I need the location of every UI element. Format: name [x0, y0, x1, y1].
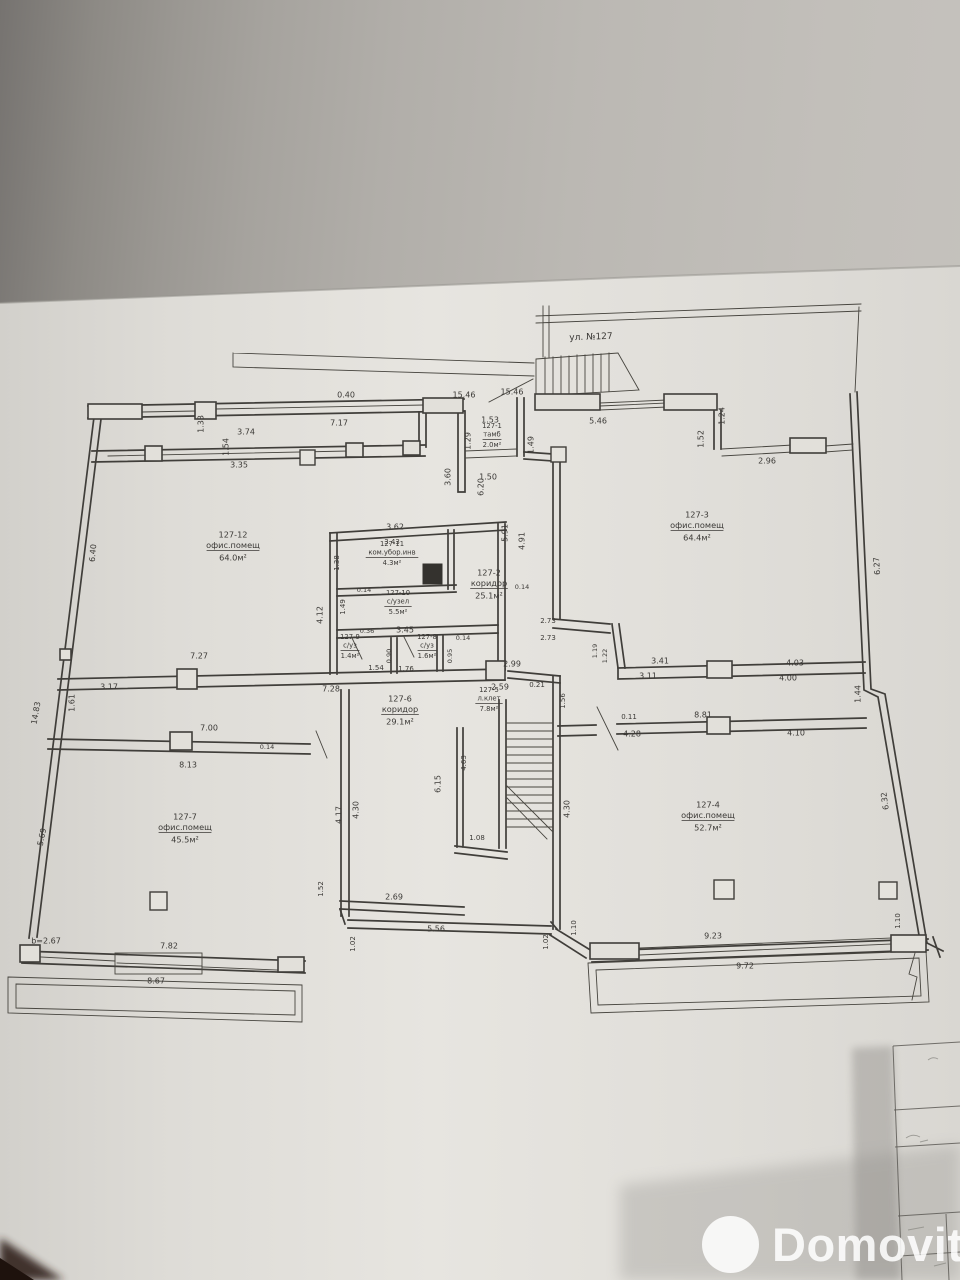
dimension-label: 7.27	[190, 652, 208, 661]
dimension-label: 1.76	[398, 665, 414, 673]
dimension-label: 3.62	[386, 523, 404, 532]
dimension-label: 3.41	[651, 657, 669, 666]
dimension-label: 1.54	[368, 664, 384, 672]
dimension-label: 0.14	[456, 634, 470, 642]
room-number-label: 127-8	[417, 633, 437, 641]
dimension-label: 1.10	[894, 913, 902, 929]
dimension-label: 3.45	[396, 626, 414, 635]
dimension-label: 1.02	[542, 934, 550, 950]
dimension-label: 1.38	[333, 555, 341, 571]
dimension-label: 1.49	[339, 599, 347, 615]
room-name-label: офис.помещ	[158, 822, 212, 832]
dimension-label: 3.17	[100, 683, 118, 692]
room-area-label: 4.3м²	[383, 559, 402, 567]
dimension-label: 8.67	[147, 977, 165, 986]
room-number-label: 127-1	[482, 422, 502, 430]
room-name-label: офис.помещ	[670, 520, 724, 530]
room-number-label: 127-9	[340, 633, 360, 641]
dimension-label: 1.22	[601, 649, 609, 663]
dimension-label: 1.44	[854, 685, 863, 703]
dimension-label: 0.90	[385, 649, 393, 663]
room-name-label: коридор	[471, 578, 507, 588]
watermark-circle-icon	[702, 1216, 759, 1273]
dimension-label: 4.10	[787, 729, 805, 738]
dimension-label: 9.72	[736, 962, 754, 971]
room-name-label: офис.помещ	[681, 810, 735, 820]
room-area-label: 1.6м²	[418, 652, 437, 660]
dimension-label: 15.46	[501, 388, 524, 397]
dimension-label: 1.33	[197, 415, 206, 433]
room-number-label: 127-10	[386, 589, 410, 597]
room-name-label: тамб	[483, 431, 500, 439]
dimension-label: 0.14	[260, 743, 274, 751]
dimension-label: 1.02	[349, 936, 357, 952]
dimension-label: 0.14	[515, 583, 529, 591]
dimension-label: 7.28	[322, 685, 340, 694]
room-name-label: л.клет	[477, 695, 500, 703]
dimension-label: 4.63	[460, 755, 468, 771]
room-number-label: 127-2	[477, 568, 501, 578]
height-note-label: b=2.67	[31, 937, 61, 946]
dimension-label: 4.28	[623, 730, 641, 739]
dimension-label: 8.81	[694, 711, 712, 720]
dimension-label: 0.11	[621, 713, 637, 721]
dimension-label: 1.56	[559, 693, 567, 709]
dimension-label: 3.60	[444, 468, 453, 486]
room-number-label: 127-3	[685, 510, 709, 520]
dimension-label: 2.73	[540, 634, 556, 642]
dimension-label: 1.29	[464, 432, 473, 450]
room-area-label: 64.0м²	[219, 553, 247, 563]
dimension-label: 0.14	[357, 586, 371, 594]
dimension-label: 2.96	[758, 457, 776, 466]
room-area-label: 5.5м²	[389, 608, 408, 616]
room-area-label: 2.0м²	[483, 441, 502, 449]
dimension-label: 6.20	[477, 478, 486, 496]
dimension-label: 8.13	[179, 761, 197, 770]
dimension-label: 7.00	[200, 724, 218, 733]
room-number-label: 127-11	[380, 540, 404, 548]
vent-shaft	[423, 564, 442, 584]
dimension-label: 4.00	[779, 674, 797, 683]
dimension-label: 1.54	[222, 438, 231, 456]
dimension-label: 4.91	[518, 532, 527, 550]
dimension-label: 3.35	[230, 461, 248, 470]
dimension-label: 5.91	[501, 524, 510, 542]
dimension-label: 1.52	[697, 430, 706, 448]
room-name-label: коридор	[382, 704, 418, 714]
dimension-label: 0.95	[446, 649, 454, 663]
dimension-label: 4.30	[352, 801, 361, 819]
dimension-label: 6.15	[434, 775, 443, 793]
paper-sheet	[0, 266, 960, 1280]
dimension-label: 2.99	[503, 660, 521, 669]
dimension-label: 1.49	[527, 436, 536, 454]
dimension-label: 2.73	[540, 617, 556, 625]
dimension-label: 7.17	[330, 419, 348, 428]
watermark: Domovita	[702, 1216, 960, 1273]
dimension-label: 5.56	[427, 925, 445, 934]
room-number-label: 127-4	[696, 800, 720, 810]
dimension-label: 6.27	[872, 557, 882, 575]
room-area-label: 52.7м²	[694, 823, 722, 833]
dimension-label: 1.52	[317, 881, 325, 897]
dimension-label: 2.69	[385, 893, 403, 902]
dimension-label: 4.30	[563, 800, 572, 818]
floor-plan-drawing: 3.743.351.331.540.407.1715.4615.465.461.…	[0, 0, 960, 1280]
dimension-label: 1.24	[718, 407, 727, 425]
room-name-label: офис.помещ	[206, 540, 260, 550]
room-name-label: с/узел	[387, 598, 409, 606]
room-number-label: 127-12	[218, 530, 247, 540]
dimension-label: 4.03	[786, 659, 804, 668]
dimension-label: 1.08	[469, 834, 485, 842]
room-area-label: 45.5м²	[171, 835, 199, 845]
dimension-label: 5.46	[589, 417, 607, 426]
dimension-label: 7.82	[160, 942, 178, 951]
room-area-label: 64.4м²	[683, 533, 711, 543]
dimension-label: 4.17	[335, 806, 344, 824]
room-number-label: 127-5	[479, 686, 499, 694]
room-area-label: 29.1м²	[386, 717, 414, 727]
room-name-label: с/уз	[343, 642, 357, 650]
watermark-text: Domovita	[772, 1216, 960, 1273]
street-label: ул. №127	[569, 332, 613, 344]
dimension-label: 0.40	[337, 391, 355, 400]
dimension-label: 1.19	[591, 644, 599, 658]
room-name-label: ком.убор.инв	[368, 549, 415, 557]
room-area-label: 1.4м²	[341, 652, 360, 660]
dimension-label: 3.74	[237, 428, 255, 437]
room-number-label: 127-6	[388, 694, 412, 704]
dimension-label: 1.10	[570, 920, 578, 936]
dimension-label: 1.61	[68, 694, 77, 712]
dimension-label: 9.23	[704, 932, 722, 941]
dimension-label: 6.40	[88, 544, 99, 563]
room-name-label: с/уз	[420, 642, 434, 650]
dimension-label: 3.11	[639, 672, 657, 681]
dimension-label: 0.21	[529, 681, 545, 689]
room-area-label: 25.1м²	[475, 591, 503, 601]
room-area-label: 7.8м²	[480, 705, 499, 713]
dimension-label: 4.12	[316, 606, 325, 624]
dimension-label: 0.36	[360, 627, 374, 635]
room-number-label: 127-7	[173, 812, 197, 822]
dimension-label: 15.46	[453, 391, 476, 400]
floor-plan-photo: 3.743.351.331.540.407.1715.4615.465.461.…	[0, 0, 960, 1280]
